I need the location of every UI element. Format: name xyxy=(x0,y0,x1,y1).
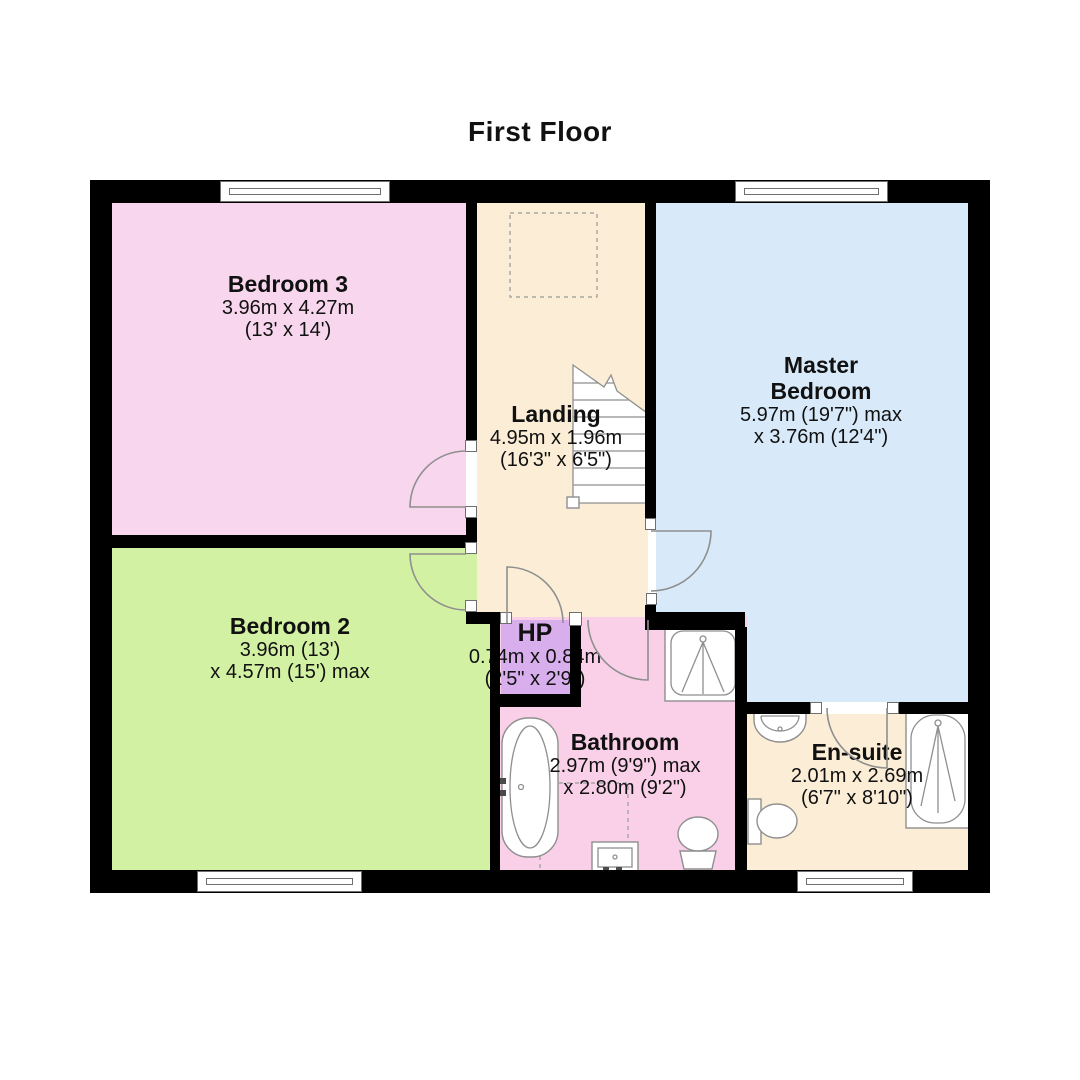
label-bedroom2: Bedroom 2 3.96m (13') x 4.57m (15') max xyxy=(210,613,369,683)
label-bathroom: Bathroom 2.97m (9'9") max x 2.80m (9'2") xyxy=(550,729,701,799)
window-ensuite xyxy=(797,871,913,892)
room-name: Bathroom xyxy=(550,729,701,755)
wall-exterior-right xyxy=(968,180,990,893)
label-hp: HP 0.74m x 0.84m (2'5" x 2'9") xyxy=(469,620,601,690)
room-name: Master Bedroom xyxy=(746,352,896,404)
door-jamb xyxy=(465,506,477,518)
wall-landing-master xyxy=(645,203,656,518)
wall-bathroom-ensuite xyxy=(735,703,747,870)
wall-master-ensuite-right xyxy=(899,702,990,714)
door-jamb xyxy=(810,702,822,714)
room-dims-metric: 5.97m (19'7") max xyxy=(740,404,902,426)
floor-plan: First Floor xyxy=(0,0,1080,1080)
door-jamb xyxy=(569,612,582,626)
page-title: First Floor xyxy=(0,116,1080,148)
label-master-bedroom: Master Bedroom 5.97m (19'7") max x 3.76m… xyxy=(740,352,902,448)
door-jamb xyxy=(645,518,656,530)
wall-master-bathroom-side xyxy=(735,627,747,703)
wall-master-ensuite-left xyxy=(747,702,810,714)
room-dims-metric: 3.96m (13') xyxy=(210,639,369,661)
room-dims-imperial: (13' x 14') xyxy=(222,319,354,341)
door-jamb xyxy=(465,542,477,554)
door-jamb xyxy=(500,612,512,624)
label-landing: Landing 4.95m x 1.96m (16'3" x 6'5") xyxy=(490,401,622,471)
window-bedroom2 xyxy=(197,871,362,892)
wall-master-bathroom-top xyxy=(645,612,745,630)
room-dims-imperial: x 4.57m (15') max xyxy=(210,661,369,683)
room-dims-imperial: (16'3" x 6'5") xyxy=(490,449,622,471)
room-master-bedroom-lower xyxy=(747,617,970,702)
door-jamb xyxy=(887,702,899,714)
wall-bedroom2-bathroom xyxy=(490,612,500,870)
room-name: Bedroom 2 xyxy=(210,613,369,639)
room-dims-metric: 0.74m x 0.84m xyxy=(469,646,601,668)
room-bedroom3 xyxy=(112,203,466,535)
room-dims-imperial: x 3.76m (12'4") xyxy=(740,426,902,448)
room-name: Landing xyxy=(490,401,622,427)
label-ensuite: En-suite 2.01m x 2.69m (6'7" x 8'10") xyxy=(791,739,923,809)
room-bedroom2 xyxy=(112,548,490,870)
room-dims-imperial: x 2.80m (9'2") xyxy=(550,777,701,799)
wall-bedroom3-landing xyxy=(466,203,477,440)
wall-bedroom3-bedroom2 xyxy=(112,535,466,548)
door-jamb xyxy=(646,593,657,605)
door-jamb xyxy=(465,600,477,612)
room-dims-imperial: (2'5" x 2'9") xyxy=(469,668,601,690)
room-dims-metric: 2.01m x 2.69m xyxy=(791,765,923,787)
room-dims-imperial: (6'7" x 8'10") xyxy=(791,787,923,809)
room-dims-metric: 2.97m (9'9") max xyxy=(550,755,701,777)
room-name: En-suite xyxy=(791,739,923,765)
room-dims-metric: 4.95m x 1.96m xyxy=(490,427,622,449)
room-name: Bedroom 3 xyxy=(222,271,354,297)
door-jamb xyxy=(465,440,477,452)
window-master-bedroom xyxy=(735,181,888,202)
wall-hp-bottom xyxy=(490,694,581,707)
wall-hp-right xyxy=(570,624,581,694)
label-bedroom3: Bedroom 3 3.96m x 4.27m (13' x 14') xyxy=(222,271,354,341)
window-bedroom3 xyxy=(220,181,390,202)
room-dims-metric: 3.96m x 4.27m xyxy=(222,297,354,319)
wall-exterior-left xyxy=(90,180,112,893)
